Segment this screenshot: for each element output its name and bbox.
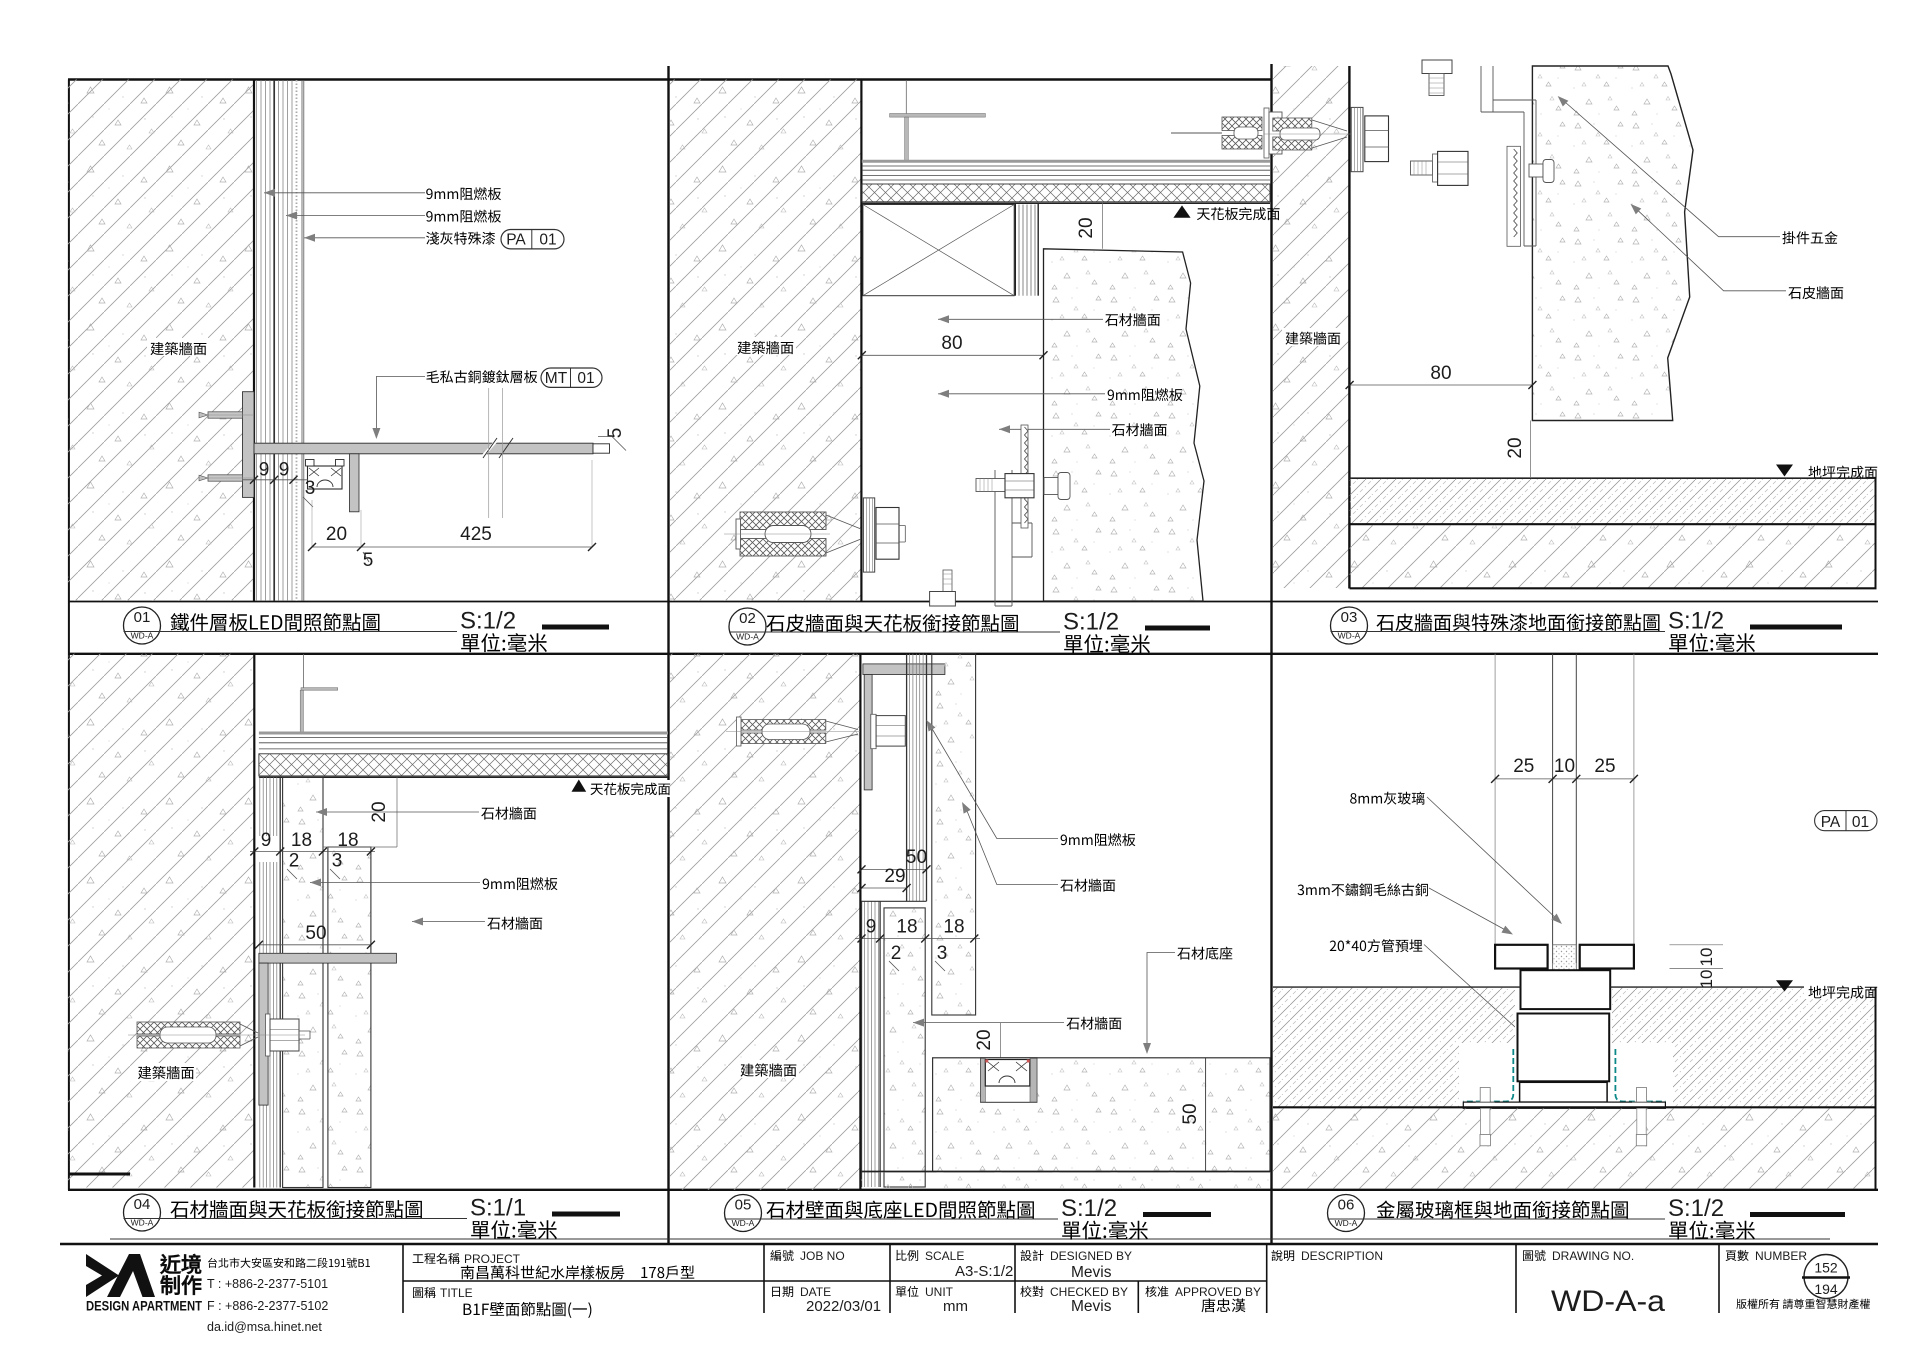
svg-text:Mevis: Mevis [1071,1298,1112,1315]
svg-text:194: 194 [1814,1281,1838,1297]
svg-text:WD-A: WD-A [736,632,759,642]
svg-text:F : +886-2-2377-5102: F : +886-2-2377-5102 [207,1299,328,1313]
svg-text:18: 18 [943,917,964,938]
svg-text:18: 18 [896,917,917,938]
svg-text:02: 02 [739,610,756,627]
svg-text:9: 9 [279,460,290,481]
svg-text:01: 01 [539,232,556,249]
svg-text:152: 152 [1814,1260,1838,1276]
svg-text:20: 20 [1076,217,1097,238]
svg-text:MT: MT [545,370,568,387]
svg-text:9: 9 [866,917,877,938]
svg-text:da.id@msa.hinet.net: da.id@msa.hinet.net [207,1320,322,1334]
svg-text:50: 50 [1180,1103,1201,1124]
svg-text:S:1/2: S:1/2 [1668,608,1724,635]
svg-text:9: 9 [261,830,272,851]
svg-text:DESIGNED BY: DESIGNED BY [1050,1249,1132,1263]
svg-text:10: 10 [1697,948,1716,967]
svg-text:APPROVED BY: APPROVED BY [1175,1285,1261,1299]
svg-text:01: 01 [1852,814,1869,831]
svg-text:2022/03/01: 2022/03/01 [806,1298,881,1315]
svg-text:PA: PA [1821,814,1841,831]
svg-text:DRAWING NO.: DRAWING NO. [1552,1249,1634,1263]
svg-text:20: 20 [326,524,347,545]
svg-text:SCALE: SCALE [925,1249,964,1263]
svg-text:50: 50 [906,847,927,868]
svg-text:NUMBER: NUMBER [1755,1249,1807,1263]
svg-text:05: 05 [735,1197,752,1214]
svg-text:Mevis: Mevis [1071,1264,1112,1281]
svg-text:2: 2 [289,851,300,872]
svg-text:S:1/2: S:1/2 [1668,1195,1724,1222]
svg-text:01: 01 [577,370,594,387]
svg-text:UNIT: UNIT [925,1285,954,1299]
svg-text:S:1/2: S:1/2 [1061,1195,1117,1222]
svg-text:S:1/2: S:1/2 [460,608,516,635]
svg-text:DESIGN APARTMENT: DESIGN APARTMENT [86,1299,202,1314]
svg-text:CHECKED BY: CHECKED BY [1050,1285,1128,1299]
svg-text:18: 18 [291,830,312,851]
svg-text:20: 20 [974,1029,995,1050]
svg-text:10: 10 [1697,970,1716,989]
svg-text:10: 10 [1554,756,1575,777]
svg-text:50: 50 [305,923,326,944]
svg-text:3: 3 [305,478,316,499]
svg-text:01: 01 [134,609,151,626]
svg-text:29: 29 [884,866,905,887]
svg-text:S:1/1: S:1/1 [470,1195,526,1222]
svg-text:06: 06 [1338,1197,1355,1214]
svg-text:20: 20 [1505,437,1526,458]
svg-text:S:1/2: S:1/2 [1063,609,1119,636]
svg-text:18: 18 [337,830,358,851]
svg-text:03: 03 [1341,609,1358,626]
svg-text:WD-A-a: WD-A-a [1551,1285,1665,1318]
svg-text:PROJECT: PROJECT [464,1252,521,1266]
svg-text:3: 3 [937,943,948,964]
svg-text:25: 25 [1513,756,1534,777]
svg-text:80: 80 [1430,363,1451,384]
svg-text:2: 2 [891,943,902,964]
svg-text:9: 9 [259,460,270,481]
svg-text:425: 425 [460,524,492,545]
svg-text:DESCRIPTION: DESCRIPTION [1301,1249,1383,1263]
svg-text:PA: PA [506,232,526,249]
svg-text:T : +886-2-2377-5101: T : +886-2-2377-5101 [207,1277,328,1291]
svg-text:3: 3 [332,851,343,872]
svg-text:25: 25 [1594,756,1615,777]
svg-text:DATE: DATE [800,1285,831,1299]
svg-text:mm: mm [943,1298,968,1315]
svg-text:80: 80 [941,333,962,354]
svg-text:JOB NO: JOB NO [800,1249,845,1263]
svg-text:04: 04 [134,1196,151,1213]
svg-text:A3-S:1/2: A3-S:1/2 [955,1263,1013,1280]
svg-text:TITLE: TITLE [440,1286,473,1300]
